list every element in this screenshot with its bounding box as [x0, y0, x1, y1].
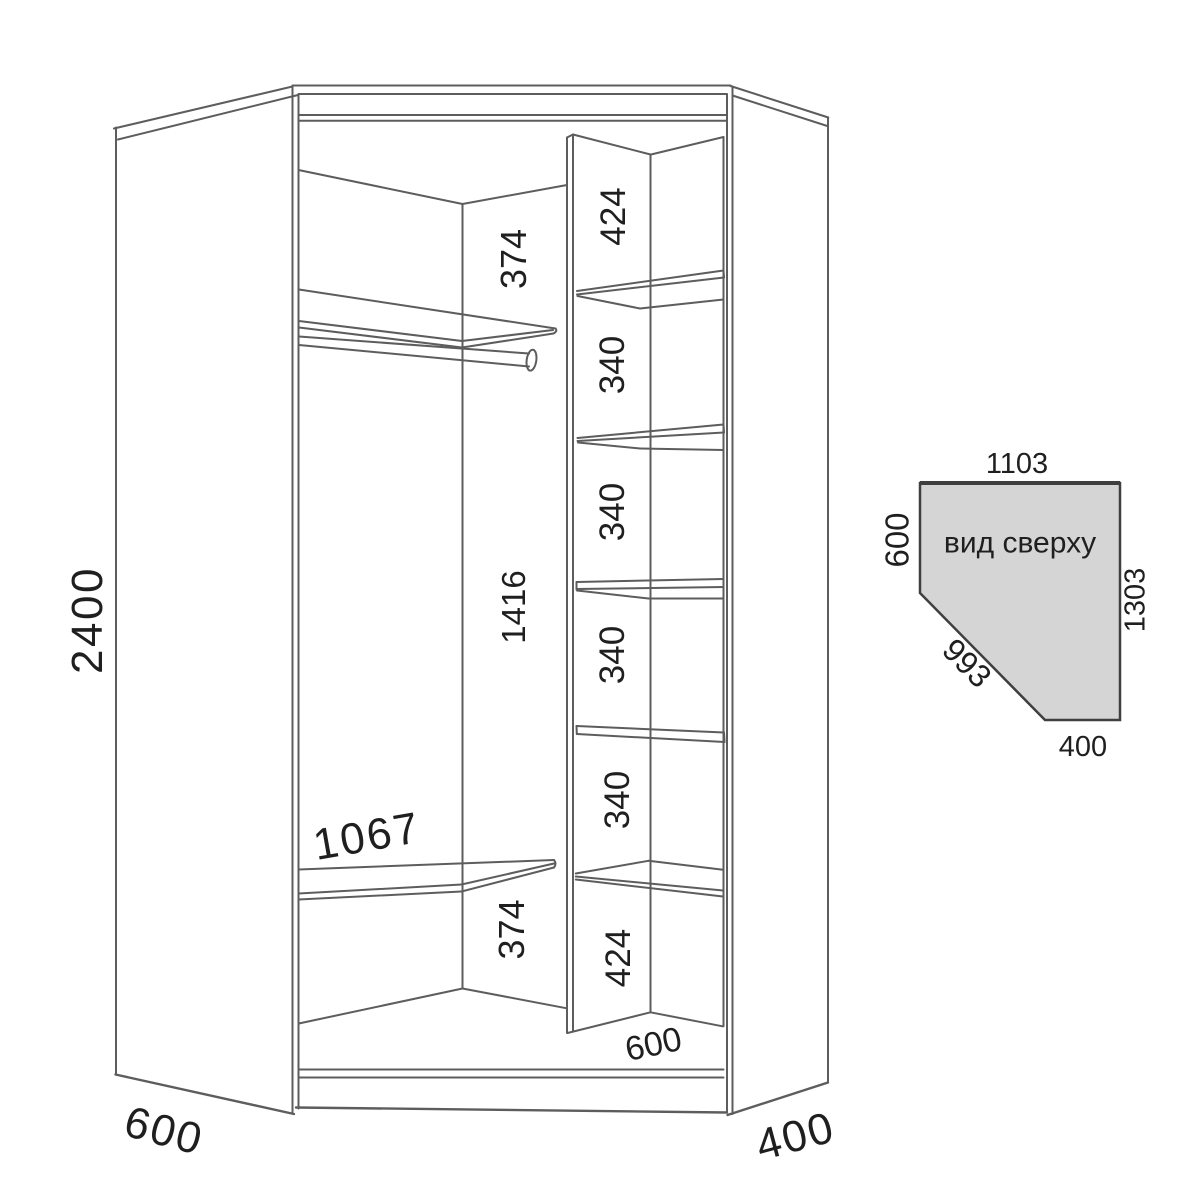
svg-text:340: 340 [598, 771, 637, 829]
svg-text:400: 400 [1059, 731, 1107, 763]
svg-text:374: 374 [493, 229, 534, 289]
svg-text:340: 340 [593, 626, 632, 684]
svg-text:вид сверху: вид сверху [944, 527, 1096, 560]
svg-text:374: 374 [491, 899, 532, 959]
svg-text:1103: 1103 [986, 448, 1048, 480]
svg-text:424: 424 [599, 929, 638, 987]
svg-text:340: 340 [593, 483, 632, 541]
svg-text:1416: 1416 [495, 570, 532, 643]
svg-text:424: 424 [594, 187, 633, 245]
svg-text:2400: 2400 [63, 566, 112, 674]
svg-text:1303: 1303 [1120, 568, 1152, 633]
svg-text:600: 600 [879, 512, 916, 567]
svg-text:340: 340 [593, 336, 632, 394]
